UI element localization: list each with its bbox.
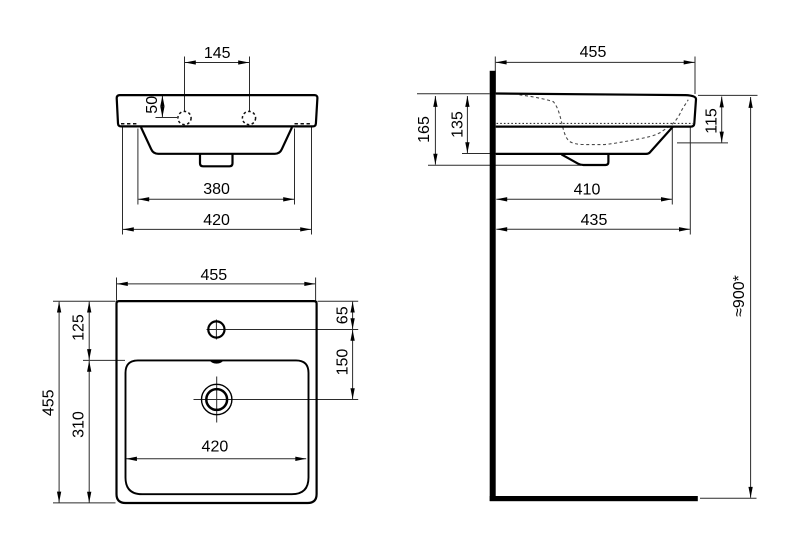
svg-text:435: 435 [581, 212, 608, 229]
svg-text:310: 310 [70, 411, 87, 438]
svg-text:115: 115 [703, 108, 720, 134]
svg-text:455: 455 [580, 44, 607, 61]
svg-text:165: 165 [416, 116, 433, 143]
svg-text:455: 455 [41, 389, 58, 416]
svg-text:135: 135 [449, 111, 466, 138]
svg-text:≈900*: ≈900* [731, 275, 748, 317]
svg-text:65: 65 [334, 306, 351, 324]
svg-text:420: 420 [203, 212, 230, 229]
svg-text:455: 455 [200, 267, 227, 284]
svg-text:410: 410 [574, 181, 601, 198]
svg-text:50: 50 [144, 96, 161, 114]
svg-text:420: 420 [202, 439, 229, 456]
svg-text:125: 125 [70, 314, 87, 341]
svg-text:145: 145 [204, 45, 231, 62]
svg-text:150: 150 [334, 349, 351, 376]
svg-text:380: 380 [203, 181, 230, 198]
